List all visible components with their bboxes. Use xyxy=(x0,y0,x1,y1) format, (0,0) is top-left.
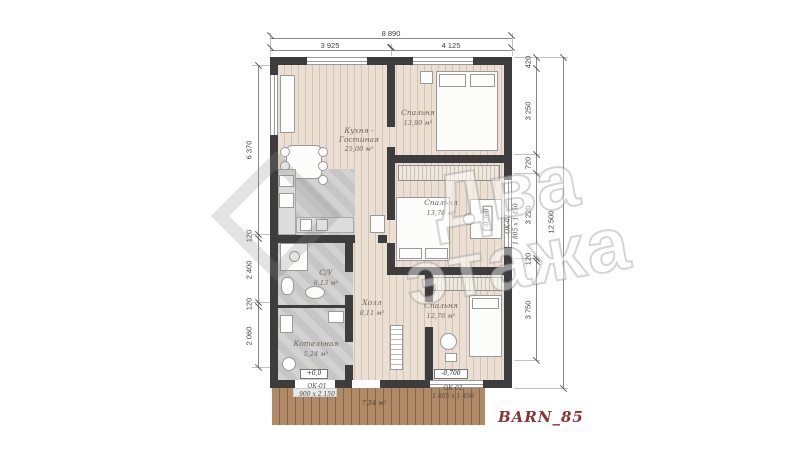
washing-machine xyxy=(328,311,344,323)
window-id: ОК-02 xyxy=(505,203,513,245)
room-label-hall: Холл 8,11 м² xyxy=(350,299,394,317)
wall-segment xyxy=(345,243,353,272)
window-id: ОК-01 xyxy=(292,383,342,391)
level-value: -0,360 xyxy=(484,208,492,227)
wall-segment xyxy=(345,365,353,380)
terrace-area-label: 7,54 м² xyxy=(352,398,396,407)
window-left-living xyxy=(270,75,278,135)
room-label-bedroom2: Спальня 13,76 м² xyxy=(416,199,466,217)
chair xyxy=(318,161,328,171)
extension-line xyxy=(252,65,270,66)
window-top-kitchen xyxy=(307,57,367,65)
pillow xyxy=(439,74,466,87)
nightstand xyxy=(420,71,433,84)
kitchen-sink xyxy=(279,175,294,187)
dim-label: 120 xyxy=(245,298,254,311)
room-label-bedroom1: Спальня 13,90 м² xyxy=(394,109,442,127)
room-name: С/У xyxy=(304,269,348,278)
room-name: Спальня xyxy=(416,302,466,311)
radiator xyxy=(390,325,403,370)
window-id: ОК-02 xyxy=(426,385,480,393)
dim-label: 3 750 xyxy=(524,301,533,320)
floor-plan-sheet: 8 890 3 925 4 125 6 370 120 2 400 120 2 … xyxy=(0,0,800,450)
room-label-kitchen: Кухня - Гостиная 25,00 м² xyxy=(330,127,388,153)
stove xyxy=(279,193,294,208)
dim-label: 720 xyxy=(524,157,533,170)
level-mark-terrace: -0,700 xyxy=(434,369,468,379)
wall-segment xyxy=(278,235,355,243)
window-size: 1 805 х 1 450 xyxy=(426,393,480,401)
wall-segment xyxy=(387,155,504,163)
window-label-ok01: ОК-01 900 х 2 150 xyxy=(292,383,342,399)
dim-label: 3 250 xyxy=(524,102,533,121)
room-area: 7,54 м² xyxy=(352,399,396,407)
room-label-bedroom3: Спальня 12,76 м² xyxy=(416,302,466,320)
pillow xyxy=(470,74,495,87)
stool xyxy=(445,353,457,362)
dim-label: 4 125 xyxy=(442,41,461,50)
table xyxy=(440,333,457,350)
room-area: 8,11 м² xyxy=(350,309,394,317)
room-area: 6,13 м² xyxy=(304,279,348,287)
boiler-unit xyxy=(280,315,293,333)
dim-label: 6 370 xyxy=(245,141,254,160)
extension-line xyxy=(514,57,568,58)
wardrobe xyxy=(398,165,500,181)
window-size: 900 х 2 150 xyxy=(292,391,342,399)
room-name: Холл xyxy=(350,299,394,308)
project-title: BARN_85 xyxy=(498,408,584,426)
room-area: 25,00 м² xyxy=(330,145,388,153)
sink xyxy=(305,286,325,299)
window-label-ok02-bottom: ОК-02 1 805 х 1 450 xyxy=(426,385,480,401)
terrace-door-opening xyxy=(352,380,380,388)
dim-line-right-overall xyxy=(563,57,564,388)
dim-label: 2 060 xyxy=(245,327,254,346)
level-mark-entrance: +0,0 xyxy=(300,369,328,379)
dim-label: 420 xyxy=(524,56,533,69)
dim-line-left-chain xyxy=(258,65,259,367)
extension-line xyxy=(514,388,568,389)
room-area: 13,76 м² xyxy=(416,209,466,217)
room-area: 12,76 м² xyxy=(416,312,466,320)
wall-segment xyxy=(425,327,433,380)
pillow xyxy=(425,248,448,259)
dim-label: 2 400 xyxy=(245,261,254,280)
dim-label: 8 890 xyxy=(382,29,401,38)
dim-label: 12 500 xyxy=(547,211,556,234)
room-name: Кухня - Гостиная xyxy=(330,127,388,144)
chair xyxy=(318,147,328,157)
appliance xyxy=(300,219,312,231)
extension-line xyxy=(252,367,270,368)
toilet xyxy=(281,277,294,295)
building-plan: Кухня - Гостиная 25,00 м² Спальня 13,90 … xyxy=(270,57,512,388)
water-heater xyxy=(282,357,296,371)
wardrobe xyxy=(433,277,502,291)
chair xyxy=(280,147,290,157)
room-label-boiler: Котельная 5,24 м² xyxy=(286,340,346,358)
room-label-bathroom: С/У 6,13 м² xyxy=(304,269,348,287)
wall-segment xyxy=(387,267,504,275)
wall-segment xyxy=(378,235,387,243)
dim-label: 120 xyxy=(245,230,254,243)
dim-line-right-chain xyxy=(536,57,537,360)
sofa xyxy=(280,75,295,133)
dim-label: 3 925 xyxy=(321,41,340,50)
room-area: 5,24 м² xyxy=(286,350,346,358)
room-name: Котельная xyxy=(286,340,346,349)
wall-segment xyxy=(425,275,433,302)
room-area: 13,90 м² xyxy=(394,119,442,127)
dim-line-top-overall xyxy=(270,38,512,39)
window-size: 1 805 х 1 450 xyxy=(513,203,521,245)
room-name: Спальня xyxy=(394,109,442,118)
pillow xyxy=(472,298,499,309)
window-top-bedroom xyxy=(413,57,473,65)
shower-drain xyxy=(289,251,300,262)
dim-line-top-seg1 xyxy=(270,50,391,51)
wall-segment xyxy=(387,243,395,267)
room-name: Спальня xyxy=(416,199,466,208)
fridge xyxy=(370,215,385,233)
dim-line-top-seg2 xyxy=(391,50,512,51)
appliance xyxy=(316,219,328,231)
wall-segment xyxy=(278,305,345,308)
window-label-ok02-right: ОК-02 1 805 х 1 450 xyxy=(496,186,530,262)
chair xyxy=(318,175,328,185)
pillow xyxy=(399,248,422,259)
